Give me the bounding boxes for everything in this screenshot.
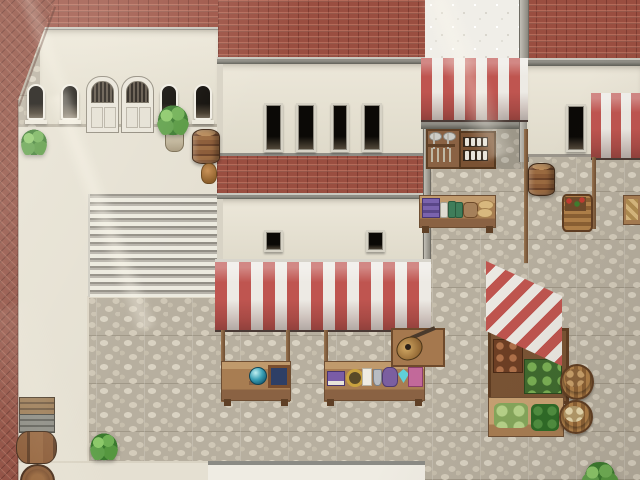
- bottle: [483, 138, 487, 146]
- clay-jug[interactable]: [201, 163, 217, 184]
- bottle: [465, 138, 469, 146]
- door-panel: [91, 107, 103, 128]
- center-shop-wall-upper: [217, 64, 428, 156]
- tall-window: [566, 104, 586, 152]
- right-shop-awning: [591, 93, 640, 160]
- small-basket[interactable]: [463, 202, 478, 218]
- pilaster: [217, 199, 223, 263]
- potato-basket[interactable]: [560, 364, 594, 400]
- bread-rolls: [564, 406, 584, 422]
- right-door[interactable]: [121, 76, 154, 133]
- spear: [443, 148, 445, 162]
- plaza-curb-left: [87, 297, 89, 461]
- arched-window: [27, 84, 45, 120]
- small-window: [264, 230, 283, 252]
- axe-icon: [443, 132, 456, 141]
- broccoli: [531, 404, 559, 431]
- vegetable-basket[interactable]: [562, 194, 593, 232]
- white-bottle[interactable]: [440, 202, 448, 218]
- purple-pouch[interactable]: [382, 367, 398, 387]
- small-window: [366, 230, 385, 252]
- left-door[interactable]: [86, 76, 119, 133]
- bread-basket[interactable]: [559, 400, 593, 434]
- center-shop-roof-lower: [217, 156, 428, 196]
- white-stone-terrace: [425, 0, 526, 58]
- red-vegetables: [565, 197, 586, 211]
- pink-box[interactable]: [408, 367, 423, 387]
- door-grille: [126, 81, 149, 103]
- spear: [449, 148, 451, 162]
- bottle: [471, 138, 475, 146]
- tall-window: [264, 103, 283, 152]
- green-bottle[interactable]: [455, 202, 463, 218]
- side-barrel[interactable]: [16, 431, 57, 464]
- cabbages: [494, 403, 528, 428]
- bottle: [471, 151, 475, 160]
- bottle: [483, 151, 487, 160]
- arched-window: [194, 84, 212, 120]
- bottle: [477, 151, 481, 160]
- candle[interactable]: [362, 368, 372, 386]
- bottle-shelf[interactable]: [459, 131, 496, 169]
- door-panel: [104, 107, 116, 128]
- purple-cloth[interactable]: [422, 198, 440, 218]
- rolling-shutter: [88, 194, 222, 297]
- center-shop-eave-upper: [217, 57, 428, 64]
- spear: [431, 148, 433, 162]
- center-shop-wall-lower: [217, 199, 428, 263]
- framed-picture[interactable]: [268, 365, 290, 388]
- lute-soundhole: [405, 344, 411, 350]
- potted-plant-leaves: [157, 103, 189, 139]
- market-awning: [215, 262, 431, 332]
- awning-post: [524, 129, 528, 263]
- game-viewport: [0, 0, 640, 480]
- tall-window: [362, 103, 382, 152]
- door-panel: [139, 107, 151, 128]
- bush: [90, 431, 118, 464]
- veg-table-low[interactable]: [488, 397, 564, 437]
- tall-window: [331, 103, 349, 152]
- axe-icon: [429, 132, 442, 141]
- bread-sticks: [626, 199, 638, 220]
- lower-building-rooftop: [208, 461, 425, 480]
- door-grille: [91, 81, 114, 103]
- terrace-awning: [421, 58, 528, 122]
- right-shop-roof: [526, 0, 640, 60]
- bush: [21, 127, 47, 159]
- bottle: [477, 138, 481, 146]
- rack-bar: [428, 144, 455, 147]
- tall-window: [296, 103, 316, 152]
- lettuce-shelf: [524, 359, 562, 394]
- bread-table[interactable]: [623, 195, 640, 225]
- right-shop-eave: [526, 58, 640, 66]
- potatoes: [565, 369, 585, 387]
- bread-loaf[interactable]: [477, 208, 493, 218]
- arched-window: [61, 84, 79, 120]
- barrel[interactable]: [192, 129, 220, 164]
- crystal-orb[interactable]: [249, 367, 267, 385]
- center-shop-roof-upper: [218, 0, 427, 62]
- door-panel: [126, 107, 138, 128]
- purple-book[interactable]: [327, 371, 345, 386]
- bottle: [465, 151, 469, 160]
- lute-shelf[interactable]: [391, 328, 445, 367]
- gray-flask[interactable]: [373, 369, 382, 386]
- weapon-rack[interactable]: [426, 129, 461, 169]
- barrel[interactable]: [528, 163, 555, 196]
- spear: [437, 148, 439, 162]
